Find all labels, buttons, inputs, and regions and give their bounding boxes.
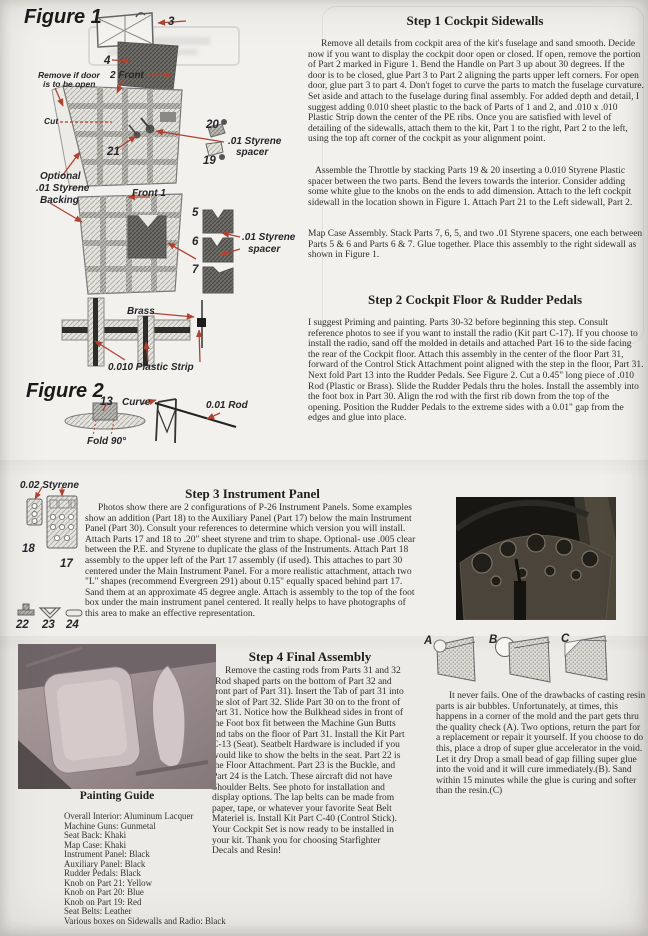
figure1-spacer-a-line1: .01 Styrene <box>228 136 281 147</box>
figure2-part13-label: 13 <box>100 396 113 408</box>
step4-title: Step 4 Final Assembly <box>212 649 408 665</box>
figure1-front1-label: Front 1 <box>132 188 166 199</box>
figure1-part4-label: 4 <box>104 55 110 67</box>
cockpit-photo <box>456 497 616 620</box>
figure1-spacer-a-line2: spacer <box>236 147 268 158</box>
resin-bubble-diagram <box>400 625 640 690</box>
instruction-sheet-page: Figure 1 3 4 2 Front Remove if door is t… <box>0 0 648 936</box>
figure1-optional-line3: Backing <box>40 195 79 206</box>
figure1-remove-note-line2: is to be open <box>43 79 95 89</box>
step3-part24-label: 24 <box>66 619 79 631</box>
figure2-curve-label: Curve <box>122 397 150 408</box>
painting-guide-list: Overall Interior: Aluminum Lacquer Machi… <box>64 812 226 926</box>
step2-title: Step 2 Cockpit Floor & Rudder Pedals <box>308 292 642 308</box>
step1-title: Step 1 Cockpit Sidewalls <box>308 13 642 29</box>
figure1-part5-label: 5 <box>192 207 198 219</box>
painting-guide-item: Various boxes on Sidewalls and Radio: Bl… <box>64 917 226 927</box>
step3-title: Step 3 Instrument Panel <box>85 486 420 502</box>
figure1-optional-line1: Optional <box>40 171 81 182</box>
figure1-part6-label: 6 <box>192 236 198 248</box>
step4-paragraph-1: Remove the casting rods from Parts 31 an… <box>212 666 408 857</box>
step3-part22-label: 22 <box>16 619 29 631</box>
figure1-title: Figure 1 <box>24 6 102 29</box>
step1-paragraph-2: Assemble the Throttle by stacking Parts … <box>308 166 644 208</box>
figure1-part21-label: 21 <box>107 146 120 158</box>
resin-note-paragraph: It never fails. One of the drawbacks of … <box>436 691 646 797</box>
figure1-part19-label: 19 <box>203 155 216 167</box>
figure1-cut-label: Cut <box>44 116 58 126</box>
step1-paragraph-3: Map Case Assembly. Stack Parts 7, 6, 5, … <box>308 229 644 261</box>
step3-part23-label: 23 <box>42 619 55 631</box>
figure1-part3-label: 3 <box>168 16 174 28</box>
step2-paragraph-1: I suggest Priming and painting. Parts 30… <box>308 318 644 424</box>
seat-parts-photo <box>18 644 216 789</box>
step3-paragraph-1: Photos show there are 2 configurations o… <box>85 503 420 620</box>
resin-diagram-a-label: A <box>424 635 432 647</box>
figure2-rod-label: 0.01 Rod <box>206 400 248 411</box>
figure1-part7-label: 7 <box>192 264 198 276</box>
resin-diagram-c-label: C <box>561 633 569 645</box>
step1-paragraph-1: Remove all details from cockpit area of … <box>308 39 644 145</box>
step3-part17-label: 17 <box>60 558 73 570</box>
figure2-title: Figure 2 <box>26 380 104 403</box>
figure1-plastic-strip-label: 0.010 Plastic Strip <box>108 362 194 373</box>
figure1-part20-label: 20 <box>206 119 219 131</box>
figure1-spacer-b-line2: spacer <box>248 244 280 255</box>
figure1-brass-label: Brass <box>127 306 155 317</box>
step3-styrene-label: 0.02 Styrene <box>20 480 79 491</box>
figure1-spacer-b-line1: .01 Styrene <box>242 232 295 243</box>
figure2-fold-label: Fold 90° <box>87 436 126 447</box>
step3-part18-label: 18 <box>22 543 35 555</box>
figure1-front2-label: 2 Front <box>110 70 144 81</box>
painting-guide-title: Painting Guide <box>18 790 216 802</box>
figure1-optional-line2: .01 Styrene <box>36 183 89 194</box>
resin-diagram-b-label: B <box>489 634 497 646</box>
